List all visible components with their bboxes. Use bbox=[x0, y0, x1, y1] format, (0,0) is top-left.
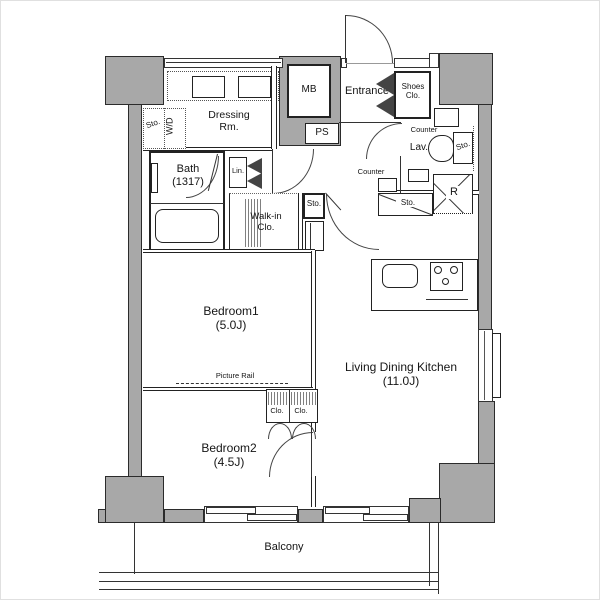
shoes-closet-label: Shoes Clo. bbox=[395, 82, 431, 101]
window-bedroom2-pane1 bbox=[206, 507, 256, 514]
hall-storage-label: Sto. bbox=[303, 199, 325, 208]
balcony-left-edge bbox=[134, 523, 135, 574]
stove-burner-2 bbox=[450, 266, 458, 274]
lav-counter-box bbox=[434, 108, 459, 127]
column-top-right bbox=[439, 53, 493, 105]
kitchen-storage-label: Sto. bbox=[396, 198, 420, 207]
entrance-step-line bbox=[339, 122, 401, 123]
closet1-hanger-rod bbox=[268, 392, 287, 405]
vanity-unit-1 bbox=[192, 76, 225, 98]
window-top-dressing bbox=[164, 58, 283, 68]
lav-door-arc bbox=[366, 123, 402, 159]
wall-bath-bedroom1 bbox=[143, 249, 315, 253]
stove-burner-3 bbox=[442, 278, 449, 285]
bedroom2-label: Bedroom2 (4.5J) bbox=[164, 441, 294, 469]
closet-bifold-arc-2 bbox=[280, 423, 292, 439]
washer-dryer-label: W/D bbox=[165, 109, 176, 143]
window-right-frame bbox=[492, 333, 501, 398]
wall-bedrooms-ldk-lower bbox=[311, 476, 316, 507]
balcony-right-edge-inner bbox=[429, 523, 430, 586]
window-right-ldk bbox=[478, 329, 493, 402]
balcony-right-edge-outer bbox=[438, 523, 439, 594]
bedroom2-closet-divider bbox=[289, 390, 290, 422]
wall-right-lower bbox=[478, 401, 495, 464]
kitchen-sink bbox=[382, 264, 418, 288]
balcony-rail-line3 bbox=[99, 589, 438, 590]
vanity-unit-2 bbox=[238, 76, 271, 98]
wall-lav-west bbox=[400, 156, 401, 193]
balcony-label: Balcony bbox=[239, 541, 329, 554]
kitchen-front-line bbox=[426, 299, 468, 300]
column-bottom-right bbox=[439, 463, 495, 523]
entrance-door-leaf bbox=[345, 15, 346, 63]
floor-plan: Balcony Dressing Rm. Sto. W/D Bath (1317… bbox=[0, 0, 600, 600]
wall-notch-bottom-left bbox=[98, 509, 106, 523]
shoes-bifold-icon-2 bbox=[376, 95, 394, 117]
walkin-label: Walk-in Clo. bbox=[241, 211, 291, 233]
closet-bifold-arc-1 bbox=[268, 423, 280, 439]
hall-counter-box bbox=[378, 178, 397, 192]
wall-right-upper bbox=[478, 104, 492, 331]
closet2-hanger-rod bbox=[291, 392, 316, 405]
linen-label: Lin. bbox=[228, 167, 248, 176]
wall-top-step bbox=[429, 53, 439, 68]
column-top-left bbox=[105, 56, 164, 105]
pipe-space-label: PS bbox=[305, 127, 339, 139]
window-right-mullion bbox=[484, 331, 485, 400]
lav-east-dotted-line bbox=[473, 126, 474, 171]
dressing-room-label: Dressing Rm. bbox=[197, 109, 261, 134]
bathtub bbox=[155, 209, 219, 243]
fridge-label: R bbox=[446, 186, 462, 199]
bedroom2-door-leaf bbox=[311, 432, 312, 477]
wall-left bbox=[128, 104, 142, 477]
wall-step-bottom-right bbox=[409, 498, 441, 523]
lav-counter-label: Counter bbox=[407, 126, 441, 135]
entrance-door-arc bbox=[346, 15, 393, 63]
hall-counter-label: Counter bbox=[353, 168, 389, 177]
lav-cabinet-box bbox=[408, 169, 429, 182]
column-bottom-left bbox=[105, 476, 164, 523]
bath-shelf bbox=[151, 163, 158, 193]
bath-divider-line bbox=[150, 203, 224, 204]
window-ldk-pane2 bbox=[363, 514, 408, 521]
linen-bifold-icon-2 bbox=[247, 173, 262, 189]
wall-bottom-b bbox=[298, 509, 323, 523]
bedroom1-sliding-door bbox=[305, 221, 324, 251]
balcony-rail-line1 bbox=[99, 572, 438, 573]
toilet-icon bbox=[428, 135, 454, 162]
picture-rail-line bbox=[176, 383, 288, 384]
bedroom1-label: Bedroom1 (5.0J) bbox=[166, 304, 296, 332]
window-ldk-pane1 bbox=[325, 507, 370, 514]
picture-rail-label: Picture Rail bbox=[206, 372, 264, 381]
window-top-mullion bbox=[166, 62, 281, 63]
stove-burner-1 bbox=[434, 266, 442, 274]
closet1-label: Clo. bbox=[266, 407, 288, 416]
wall-dressing-east bbox=[271, 66, 277, 149]
balcony-rail-line2 bbox=[99, 581, 438, 582]
dressing-door-leaf bbox=[272, 149, 273, 194]
window-bedroom2-pane2 bbox=[247, 514, 297, 521]
meter-box-label: MB bbox=[289, 84, 329, 96]
linen-bifold-icon-1 bbox=[247, 158, 262, 174]
entrance-threshold-line bbox=[346, 63, 394, 64]
dressing-door-arc bbox=[273, 149, 314, 194]
bedroom1-sliding-door-line bbox=[310, 223, 311, 249]
wall-bottom-a bbox=[164, 509, 204, 523]
closet2-label: Clo. bbox=[289, 407, 313, 416]
ldk-label: Living Dining Kitchen (11.0J) bbox=[326, 360, 476, 388]
shoes-bifold-icon-1 bbox=[376, 73, 394, 95]
